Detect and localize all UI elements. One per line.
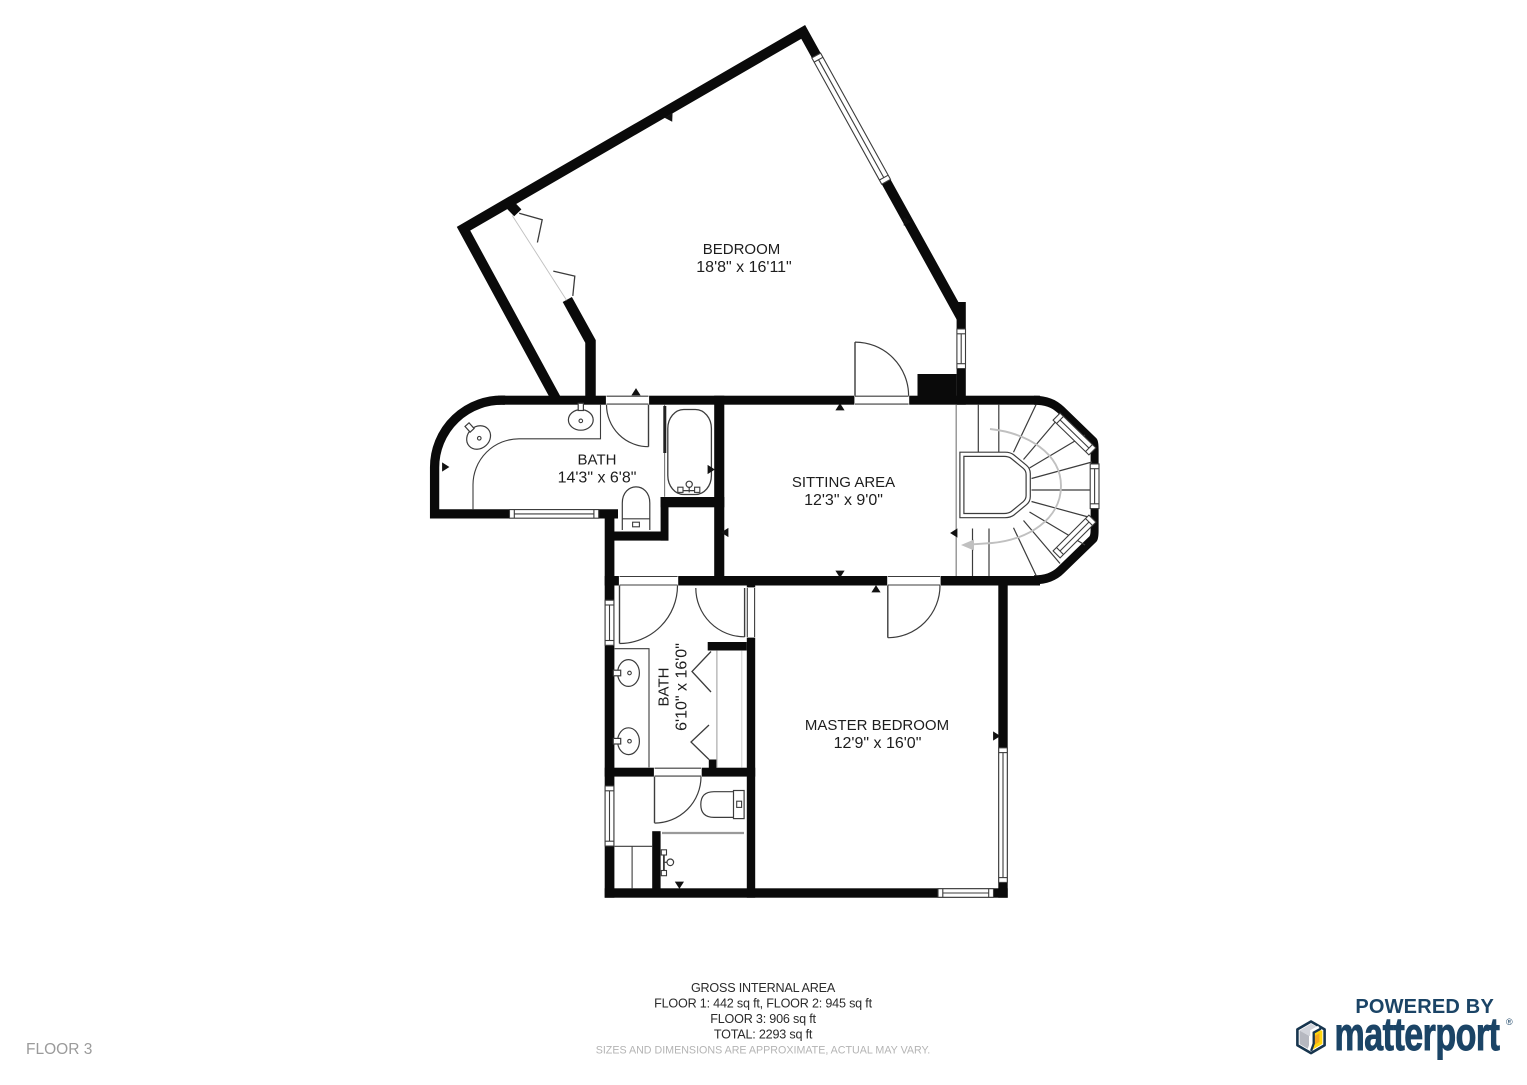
- svg-text:14'3" x 6'8": 14'3" x 6'8": [558, 470, 637, 487]
- svg-text:SIZES AND DIMENSIONS ARE APPRO: SIZES AND DIMENSIONS ARE APPROXIMATE, AC…: [596, 1045, 931, 1057]
- svg-text:BEDROOM: BEDROOM: [703, 241, 781, 258]
- svg-text:®: ®: [1506, 1017, 1513, 1027]
- svg-text:FLOOR 1: 442 sq ft, FLOOR 2: 9: FLOOR 1: 442 sq ft, FLOOR 2: 945 sq ft: [654, 996, 872, 1010]
- svg-text:12'3" x 9'0": 12'3" x 9'0": [804, 492, 883, 509]
- svg-text:BATH: BATH: [656, 668, 673, 707]
- svg-text:6'10" x 16'0": 6'10" x 16'0": [674, 643, 691, 731]
- svg-text:matterport: matterport: [1335, 1008, 1500, 1060]
- svg-text:MASTER BEDROOM: MASTER BEDROOM: [805, 717, 949, 734]
- svg-text:FLOOR 3: FLOOR 3: [26, 1041, 92, 1058]
- svg-text:18'8" x 16'11": 18'8" x 16'11": [696, 259, 791, 276]
- svg-text:FLOOR 3: 906 sq ft: FLOOR 3: 906 sq ft: [710, 1012, 816, 1026]
- svg-text:TOTAL: 2293 sq ft: TOTAL: 2293 sq ft: [714, 1027, 813, 1041]
- svg-text:BATH: BATH: [578, 452, 617, 469]
- svg-text:SITTING AREA: SITTING AREA: [792, 474, 895, 491]
- svg-text:GROSS INTERNAL AREA: GROSS INTERNAL AREA: [691, 981, 836, 995]
- svg-text:12'9" x 16'0": 12'9" x 16'0": [834, 735, 922, 752]
